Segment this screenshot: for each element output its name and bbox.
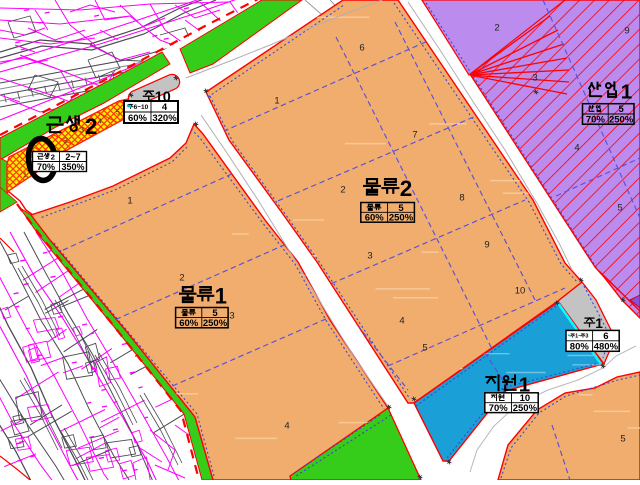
svg-text:4: 4 [98, 119, 102, 126]
svg-text:60%: 60% [179, 318, 199, 329]
svg-text:4: 4 [399, 316, 404, 327]
svg-text:2: 2 [179, 273, 184, 284]
svg-text:3: 3 [229, 311, 234, 322]
svg-text:70%: 70% [489, 403, 509, 414]
svg-text:2~7: 2~7 [65, 152, 80, 162]
svg-text:1~: 1~ [575, 334, 581, 340]
svg-text:5: 5 [116, 110, 120, 117]
svg-text:480%: 480% [594, 342, 619, 353]
svg-text:5: 5 [617, 203, 622, 214]
svg-text:70%: 70% [586, 115, 606, 126]
svg-text:70%: 70% [37, 162, 55, 172]
svg-text:6~10: 6~10 [134, 104, 149, 111]
svg-text:320%: 320% [152, 113, 177, 124]
svg-text:250%: 250% [513, 403, 538, 414]
svg-text:5: 5 [422, 343, 427, 354]
svg-text:1: 1 [595, 316, 603, 331]
svg-text:2: 2 [340, 185, 345, 196]
svg-text:250%: 250% [203, 318, 228, 329]
svg-text:9: 9 [624, 26, 629, 37]
svg-text:60%: 60% [365, 213, 385, 224]
svg-text:1: 1 [215, 283, 227, 308]
svg-text:1: 1 [621, 80, 632, 103]
svg-text:4: 4 [284, 421, 289, 432]
svg-text:2: 2 [64, 138, 68, 145]
svg-text:4: 4 [574, 143, 579, 154]
svg-text:2: 2 [494, 23, 499, 34]
svg-text:3: 3 [585, 334, 588, 340]
svg-text:350%: 350% [61, 162, 84, 172]
svg-text:7: 7 [412, 130, 417, 141]
svg-text:4: 4 [162, 102, 168, 113]
svg-text:3: 3 [80, 128, 84, 135]
svg-text:9: 9 [484, 240, 489, 251]
svg-text:3: 3 [532, 73, 537, 84]
svg-text:3: 3 [367, 251, 372, 262]
svg-text:2: 2 [400, 176, 413, 201]
svg-text:10: 10 [515, 286, 526, 297]
svg-text:2: 2 [51, 152, 55, 161]
svg-text:2: 2 [85, 114, 98, 139]
svg-text:6: 6 [359, 43, 364, 54]
svg-text:1: 1 [127, 196, 132, 207]
svg-text:60%: 60% [128, 113, 148, 124]
svg-text:1: 1 [23, 172, 27, 179]
svg-text:5: 5 [620, 434, 625, 445]
svg-text:250%: 250% [389, 213, 414, 224]
svg-text:8: 8 [459, 193, 464, 204]
svg-text:1: 1 [274, 96, 279, 107]
svg-text:80%: 80% [570, 342, 590, 353]
svg-text:6: 6 [603, 331, 608, 342]
svg-text:250%: 250% [609, 115, 634, 126]
